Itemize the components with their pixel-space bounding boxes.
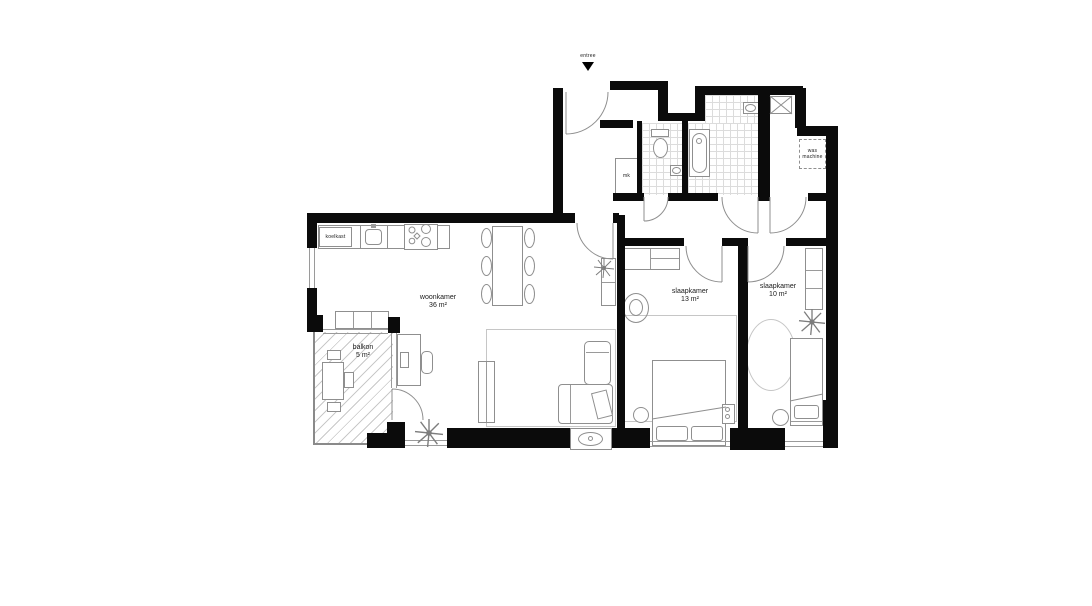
living-room-label: woonkamer 36 m² — [408, 294, 468, 311]
wall-segment — [702, 86, 803, 95]
balcony-label: balkon 5 m² — [338, 344, 388, 361]
window — [405, 440, 447, 441]
wall-segment — [610, 81, 660, 90]
wall-segment — [387, 422, 405, 448]
window — [785, 441, 823, 442]
wall-segment — [307, 213, 565, 223]
cabinet-shelf-line — [602, 282, 615, 283]
plant — [415, 419, 443, 447]
nightstand-lamp — [725, 414, 730, 419]
wall-segment — [307, 315, 323, 332]
stool — [772, 409, 789, 426]
wardrobe — [805, 248, 823, 310]
balcony-chair — [344, 372, 354, 388]
kitchen-faucet — [371, 224, 376, 228]
window — [396, 333, 397, 388]
plant — [799, 309, 825, 335]
sideboard-divider — [353, 312, 354, 328]
bed-pillow — [794, 405, 819, 419]
wall-segment — [553, 88, 563, 223]
plan-linework — [0, 0, 1092, 606]
radiator-line — [486, 362, 487, 422]
floor-plan: koelkast — [0, 0, 1092, 606]
sideboard-divider — [371, 312, 372, 328]
door-arc — [577, 223, 613, 259]
wall-segment — [758, 193, 770, 201]
desk-chair — [421, 351, 433, 374]
fridge-label: koelkast — [319, 234, 352, 240]
wall-segment — [617, 215, 625, 448]
wall-segment — [388, 317, 400, 333]
wc-handbasin-bowl — [672, 167, 681, 174]
dining-chair — [524, 284, 535, 304]
door-arc — [644, 197, 668, 221]
washbasin-bowl — [745, 104, 756, 112]
door-arc — [770, 197, 806, 233]
window — [314, 248, 315, 288]
entrance-label: entree — [570, 53, 606, 59]
door-arc — [722, 197, 758, 233]
window — [650, 441, 730, 442]
wall-segment — [738, 246, 748, 428]
wall-segment — [565, 213, 575, 223]
window — [785, 446, 823, 447]
wall-segment — [307, 213, 317, 248]
wall-segment — [613, 213, 619, 223]
wall-segment — [682, 121, 688, 197]
stove — [404, 224, 438, 250]
desk-monitor — [400, 352, 409, 368]
washing-machine-label: was machine — [799, 148, 826, 160]
window — [650, 446, 730, 447]
dining-chair — [481, 256, 492, 276]
dining-chair — [481, 284, 492, 304]
nightstand-lamp — [725, 407, 730, 412]
stool — [633, 407, 649, 423]
window — [323, 329, 388, 330]
bedroom-large-label: slaapkamer 13 m² — [660, 288, 720, 305]
bathtub-drain — [696, 138, 702, 144]
kitchen-sink-basin — [365, 229, 382, 245]
window — [391, 333, 392, 388]
armchair-cushion — [629, 299, 643, 316]
dining-table — [492, 226, 523, 306]
wall-segment — [786, 238, 838, 246]
wall-segment — [826, 128, 838, 404]
meter-cupboard-label: mk — [615, 173, 638, 179]
wall-segment — [722, 238, 748, 246]
wardrobe-divider — [650, 249, 651, 269]
door-arc — [748, 246, 784, 282]
door-arc — [392, 389, 423, 420]
wall-segment — [447, 428, 570, 448]
window — [405, 445, 447, 446]
bed-foot-line — [791, 421, 822, 422]
bed-pillow — [691, 426, 723, 441]
entrance-arrow-icon — [582, 62, 594, 71]
bedroom-small-label: slaapkamer 10 m² — [748, 283, 808, 300]
wall-segment — [823, 400, 838, 448]
dining-chair — [481, 228, 492, 248]
balcony-chair — [327, 402, 341, 412]
bedroom-small-round-rug — [746, 319, 796, 391]
sofa-chaise — [584, 341, 611, 385]
toilet-bowl — [653, 138, 668, 158]
wall-segment — [617, 238, 684, 246]
wall-segment — [758, 95, 770, 197]
toilet-tank — [651, 129, 669, 137]
sideboard — [335, 311, 389, 329]
dining-chair — [524, 228, 535, 248]
sofa-armrest-line — [570, 385, 571, 423]
wall-segment — [730, 428, 785, 450]
wardrobe-shelf-line — [651, 258, 679, 259]
window — [323, 333, 388, 334]
wall-niche-dot — [588, 436, 593, 441]
wall-segment — [613, 193, 644, 201]
wall-segment — [600, 120, 633, 128]
wall-segment — [367, 433, 387, 448]
wall-segment — [808, 193, 838, 201]
wall-segment — [668, 193, 718, 201]
wardrobe-shelf-line — [806, 288, 822, 289]
wardrobe-shelf-line — [806, 270, 822, 271]
wall-segment — [637, 121, 642, 197]
dining-chair — [524, 256, 535, 276]
window — [309, 248, 310, 288]
balcony-table — [322, 362, 344, 400]
bed-pillow — [656, 426, 688, 441]
door-arc — [686, 246, 722, 282]
sofa-chaise-cushion-line — [586, 352, 609, 353]
ventilation-shaft — [770, 96, 792, 114]
